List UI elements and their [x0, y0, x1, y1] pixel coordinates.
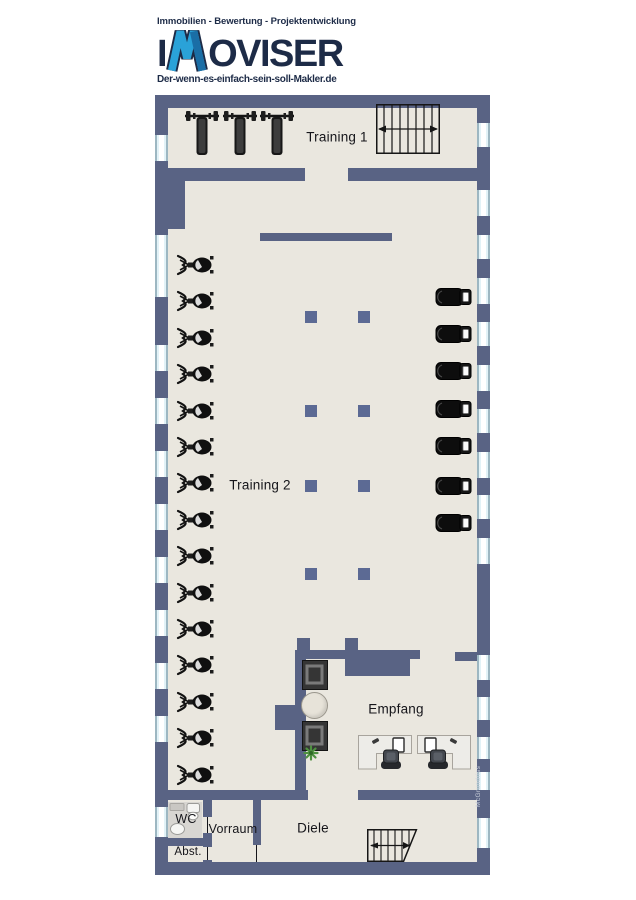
- exercise-machine-icon: [176, 617, 216, 641]
- exercise-machine-icon: [176, 435, 216, 459]
- exercise-machine-icon: [176, 289, 216, 313]
- wall-segment: [260, 233, 392, 241]
- exercise-machine: [176, 581, 216, 605]
- plant-icon: [303, 745, 319, 761]
- brand-text-prefix: I: [157, 36, 166, 72]
- exercise-machine: [176, 690, 216, 714]
- exercise-machine: [176, 399, 216, 423]
- room-label-wc: WC: [175, 812, 196, 826]
- wall-segment: [297, 638, 310, 650]
- exercise-machine-icon: [176, 471, 216, 495]
- pillar: [305, 405, 317, 417]
- bench-press-icon: [221, 108, 259, 160]
- window: [477, 190, 490, 216]
- exercise-machine-icon: [176, 544, 216, 568]
- exercise-machine-icon: [176, 362, 216, 386]
- treadmill-icon: [435, 512, 473, 534]
- window: [477, 655, 490, 680]
- pillar: [358, 480, 370, 492]
- exercise-machine: [176, 508, 216, 532]
- staircase-upper: [376, 104, 440, 154]
- letterhead: Immobilien - Bewertung - Projektentwickl…: [157, 16, 356, 85]
- window: [477, 495, 490, 519]
- window: [155, 716, 168, 742]
- door-mark: [207, 847, 208, 860]
- exercise-machine-icon: [176, 581, 216, 605]
- window: [477, 737, 490, 759]
- treadmill: [435, 398, 473, 420]
- exercise-machine: [176, 471, 216, 495]
- bench-press-icon: [183, 108, 221, 160]
- treadmill-icon: [435, 398, 473, 420]
- exercise-machine: [176, 362, 216, 386]
- room-label-empfang: Empfang: [368, 702, 423, 717]
- wall-segment: [155, 95, 168, 875]
- exercise-machine-icon: [176, 653, 216, 677]
- round-table: [301, 692, 328, 719]
- window: [155, 345, 168, 371]
- exercise-machine: [176, 726, 216, 750]
- desk-with-chair-icon: [358, 735, 412, 773]
- room-label-training-2: Training 2: [229, 478, 291, 493]
- exercise-machine-icon: [176, 726, 216, 750]
- staircase-icon: [367, 829, 419, 862]
- exercise-machine-icon: [176, 508, 216, 532]
- brand-text-suffix: OVISER: [208, 36, 343, 72]
- treadmill: [435, 286, 473, 308]
- exercise-machine: [176, 544, 216, 568]
- wall-segment: [348, 168, 490, 181]
- wall-segment: [203, 860, 212, 865]
- window: [155, 451, 168, 477]
- page: { "letterhead": { "tagline_top": "Immobi…: [0, 0, 636, 900]
- window: [477, 235, 490, 259]
- pillar: [305, 311, 317, 323]
- wall-segment: [455, 652, 477, 661]
- plant: [303, 745, 319, 761]
- brand-logo: I OVISER: [157, 28, 356, 72]
- exercise-machine: [176, 435, 216, 459]
- pillar: [358, 568, 370, 580]
- window: [477, 452, 490, 478]
- wall-segment: [155, 168, 305, 181]
- reception-desk: [417, 735, 471, 773]
- bench-press-station: [258, 108, 296, 160]
- window: [155, 557, 168, 583]
- letterhead-website: Der-wenn-es-einfach-sein-soll-Makler.de: [157, 74, 356, 85]
- room-label-vorraum: Vorraum: [209, 822, 258, 836]
- exercise-machine: [176, 617, 216, 641]
- floor-plan: Training 1 Training 2 Empfang Diele Vorr…: [155, 95, 490, 875]
- room-label-diele: Diele: [297, 821, 329, 836]
- treadmill: [435, 512, 473, 534]
- wall-segment: [168, 181, 185, 229]
- room-label-training-1: Training 1: [306, 130, 368, 145]
- treadmill-icon: [435, 475, 473, 497]
- wall-segment: [253, 790, 261, 845]
- exercise-machine-icon: [176, 253, 216, 277]
- window: [477, 365, 490, 391]
- window: [477, 278, 490, 304]
- door-mark: [256, 845, 257, 862]
- exercise-machine: [176, 763, 216, 787]
- bench-press-station: [183, 108, 221, 160]
- bench-press-icon: [258, 108, 296, 160]
- treadmill-icon: [435, 286, 473, 308]
- armchair: [302, 660, 328, 690]
- wall-segment: [345, 638, 358, 650]
- window: [155, 135, 168, 161]
- window: [155, 610, 168, 636]
- logo-m-icon: [166, 28, 208, 73]
- window: [477, 123, 490, 147]
- window: [155, 504, 168, 530]
- window: [477, 322, 490, 346]
- window: [155, 807, 168, 837]
- window: [155, 398, 168, 424]
- wall-segment: [345, 650, 410, 676]
- exercise-machine-icon: [176, 690, 216, 714]
- staircase-lower: [367, 829, 419, 862]
- exercise-machine-icon: [176, 326, 216, 350]
- window: [477, 697, 490, 720]
- pillar: [305, 568, 317, 580]
- treadmill-icon: [435, 323, 473, 345]
- exercise-machine-icon: [176, 763, 216, 787]
- exercise-machine: [176, 326, 216, 350]
- pillar: [358, 311, 370, 323]
- pillar: [305, 480, 317, 492]
- treadmill: [435, 435, 473, 457]
- exercise-machine: [176, 253, 216, 277]
- treadmill: [435, 323, 473, 345]
- wall-segment: [203, 790, 212, 817]
- window: [155, 663, 168, 689]
- window: [477, 818, 490, 848]
- desk-with-chair-icon: [417, 735, 471, 773]
- wall-segment: [358, 790, 480, 800]
- treadmill-icon: [435, 435, 473, 457]
- exercise-machine-icon: [176, 399, 216, 423]
- wall-segment: [155, 790, 308, 800]
- window: [477, 409, 490, 433]
- pillar: [358, 405, 370, 417]
- wall-segment: [168, 838, 212, 846]
- exercise-machine: [176, 289, 216, 313]
- plan-watermark: McGrundriss: [475, 761, 489, 811]
- room-label-abst: Abst.: [174, 846, 201, 858]
- window: [155, 235, 168, 297]
- treadmill-icon: [435, 360, 473, 382]
- treadmill: [435, 360, 473, 382]
- treadmill: [435, 475, 473, 497]
- wall-segment: [275, 705, 295, 730]
- reception-desk: [358, 735, 412, 773]
- staircase-icon: [376, 104, 440, 154]
- letterhead-services: Immobilien - Bewertung - Projektentwickl…: [157, 16, 356, 27]
- bench-press-station: [221, 108, 259, 160]
- exercise-machine: [176, 653, 216, 677]
- window: [477, 538, 490, 564]
- armchair-icon: [302, 660, 328, 690]
